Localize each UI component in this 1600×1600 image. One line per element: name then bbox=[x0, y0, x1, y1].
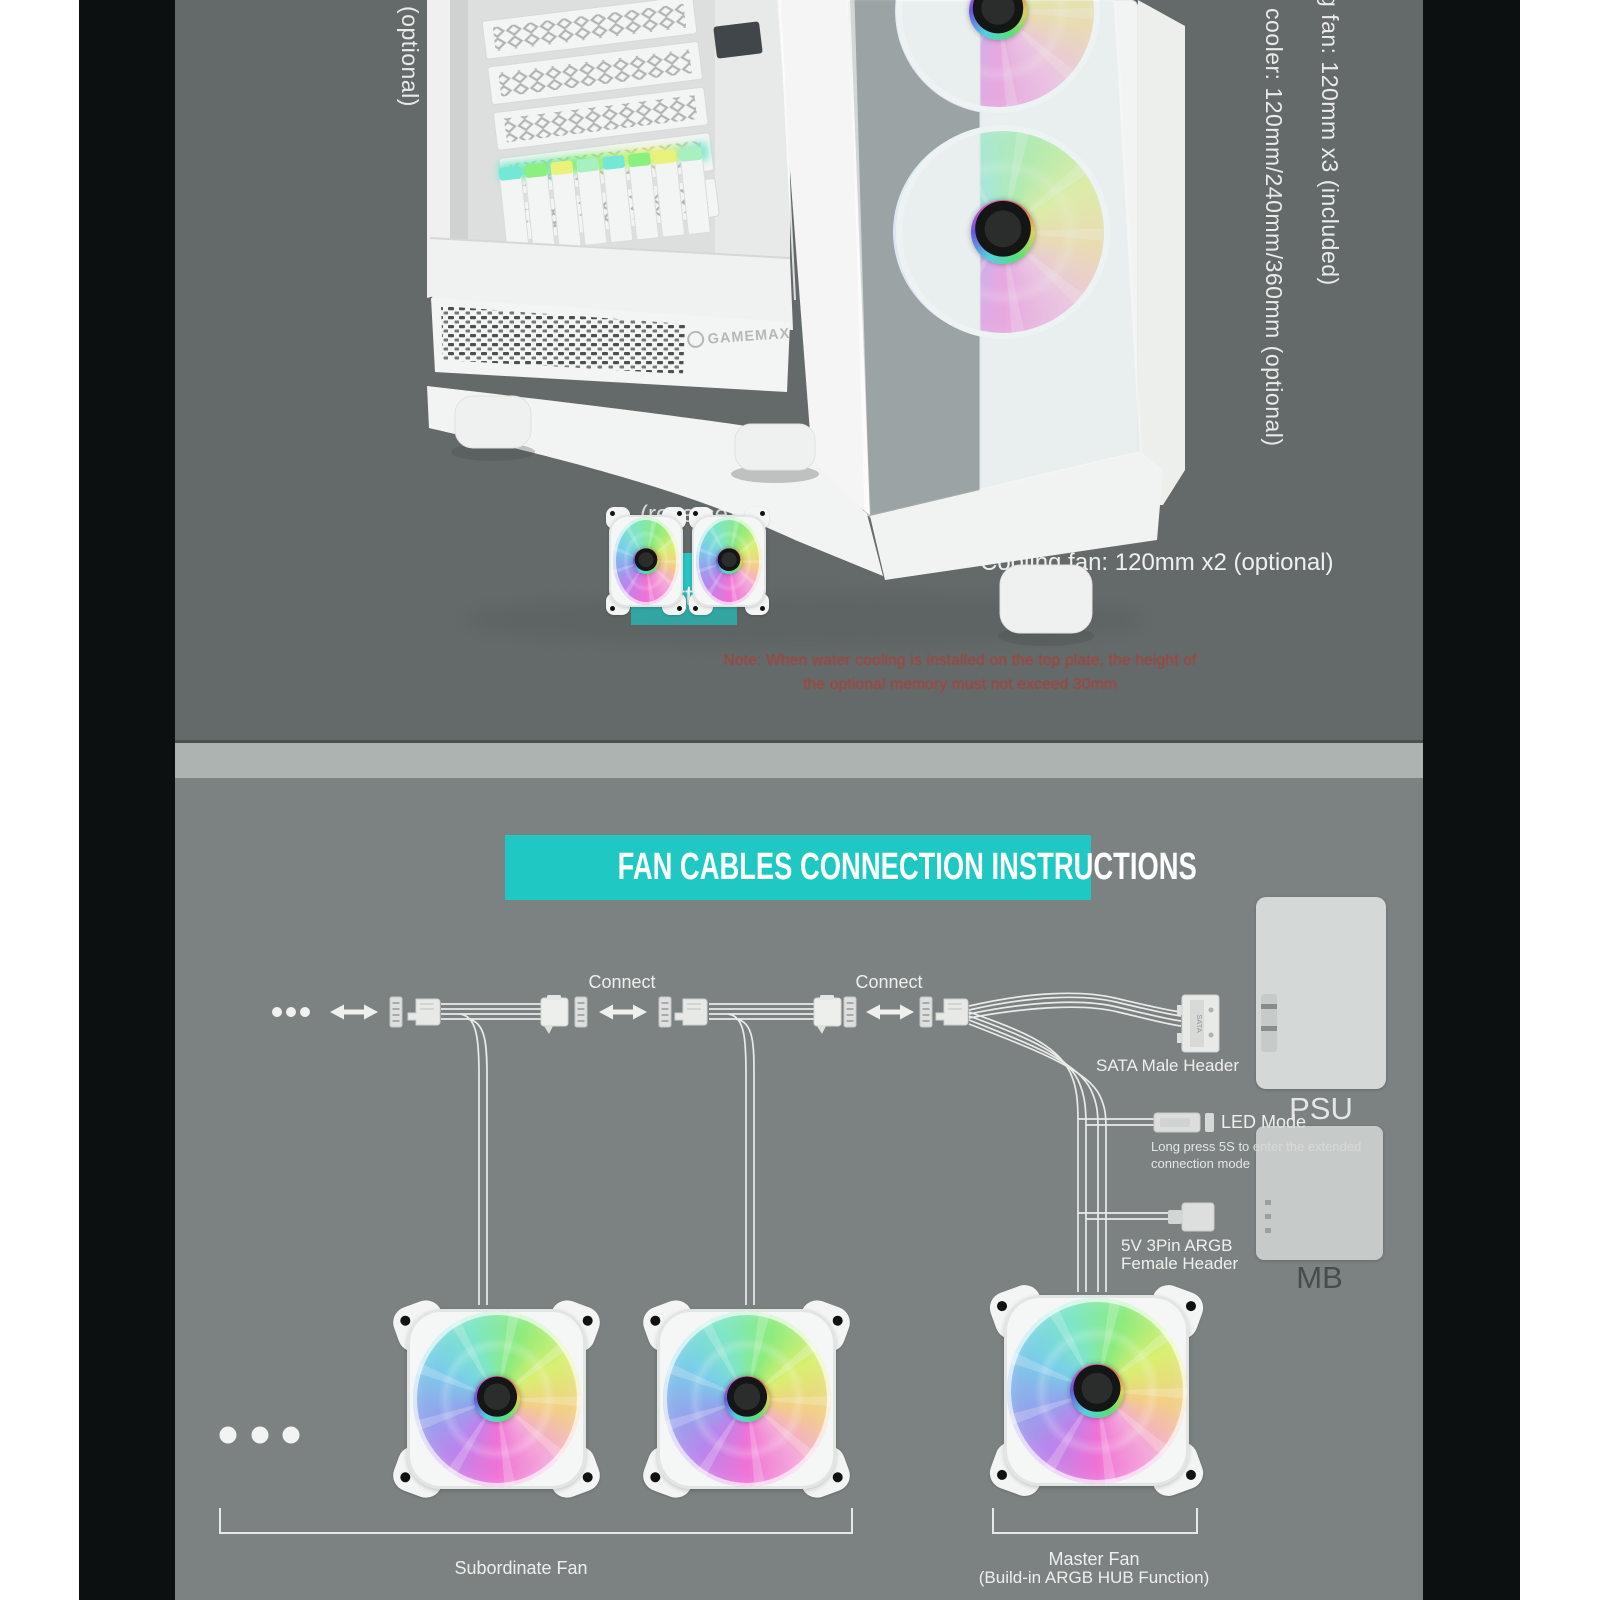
subordinate-fan-1 bbox=[393, 1303, 600, 1495]
screw-icon bbox=[1185, 1468, 1198, 1481]
optional-bottom-fan-2 bbox=[687, 503, 771, 619]
master-fan bbox=[990, 1288, 1203, 1493]
screw-icon bbox=[760, 606, 765, 611]
screw-icon bbox=[399, 1471, 412, 1484]
screw-icon bbox=[996, 1468, 1009, 1481]
case-front-fan-hub bbox=[971, 200, 1035, 264]
warning-line-2: the optional memory must not exceed 30mm bbox=[550, 676, 1370, 694]
screw-icon bbox=[831, 1471, 844, 1484]
psu-box bbox=[1256, 897, 1386, 1089]
screw-icon bbox=[677, 511, 682, 516]
case-body-art: GAMEMAX bbox=[415, 0, 1185, 660]
screw-icon bbox=[581, 1471, 594, 1484]
top-section: x1 (included) (optional) g fan: 120mm x3… bbox=[175, 0, 1423, 740]
optional-bottom-fan-1 bbox=[604, 503, 688, 619]
screw-icon bbox=[610, 606, 615, 611]
rotated-label-right-cooling-fan: g fan: 120mm x3 (included) bbox=[1316, 0, 1343, 286]
screw-icon bbox=[1185, 1300, 1198, 1313]
screw-icon bbox=[649, 1314, 662, 1327]
screw-icon bbox=[610, 511, 615, 516]
screw-icon bbox=[399, 1314, 412, 1327]
left-black-bar bbox=[79, 0, 175, 1600]
screw-icon bbox=[760, 511, 765, 516]
mb-header-pins-icon bbox=[1265, 1200, 1271, 1236]
subordinate-fan-2 bbox=[643, 1303, 850, 1495]
screw-icon bbox=[996, 1300, 1009, 1313]
connect-label-left: Connect bbox=[552, 972, 692, 993]
connect-label-right: Connect bbox=[819, 972, 959, 993]
mb-label: MB bbox=[1256, 1260, 1383, 1296]
section-divider bbox=[175, 740, 1423, 778]
rotated-label-right-water-cooler: cooler: 120mm/240mm/360mm (optional) bbox=[1260, 8, 1287, 447]
screw-icon bbox=[693, 606, 698, 611]
master-fan-label-line-1: Master Fan bbox=[994, 1549, 1194, 1570]
argb-label-line-1: 5V 3Pin ARGB bbox=[1121, 1236, 1233, 1256]
screw-icon bbox=[831, 1314, 844, 1327]
right-black-bar bbox=[1423, 0, 1520, 1600]
argb-label-line-2: Female Header bbox=[1121, 1254, 1238, 1274]
instructions-title-text: FAN CABLES CONNECTION INSTRUCTIONS bbox=[618, 835, 1197, 900]
mb-box bbox=[1256, 1126, 1383, 1260]
screw-icon bbox=[693, 511, 698, 516]
psu-label: PSU bbox=[1256, 1091, 1386, 1127]
case-photo: GAMEMAX bbox=[415, 0, 1185, 660]
subordinate-fan-label: Subordinate Fan bbox=[371, 1558, 671, 1579]
master-fan-label-line-2: (Build-in ARGB HUB Function) bbox=[974, 1568, 1214, 1588]
screw-icon bbox=[581, 1314, 594, 1327]
screw-icon bbox=[677, 606, 682, 611]
instructions-title: FAN CABLES CONNECTION INSTRUCTIONS bbox=[505, 835, 1091, 900]
sata-label: SATA Male Header bbox=[1096, 1056, 1239, 1076]
long-press-line-2: connection mode bbox=[1151, 1156, 1250, 1171]
screw-icon bbox=[649, 1471, 662, 1484]
psu-sata-slot-icon bbox=[1261, 994, 1277, 1052]
